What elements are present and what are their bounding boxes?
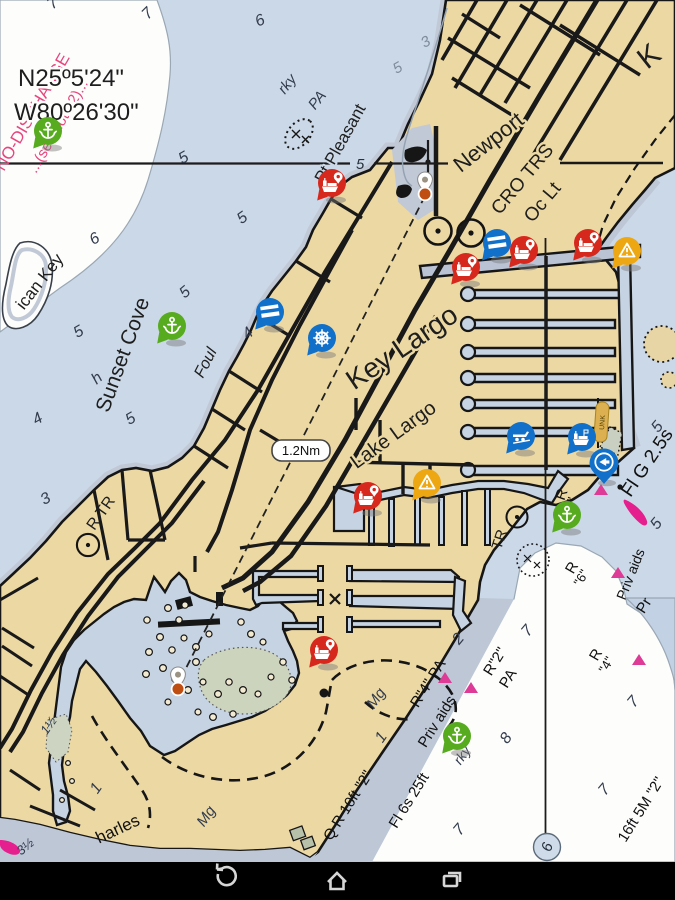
svg-text:N25º5'24": N25º5'24"	[18, 65, 124, 92]
svg-text:1.2Nm: 1.2Nm	[282, 443, 320, 458]
svg-text:5: 5	[356, 156, 365, 173]
svg-text:UNK: UNK	[599, 415, 607, 431]
svg-text:W80º26'30": W80º26'30"	[14, 99, 139, 126]
